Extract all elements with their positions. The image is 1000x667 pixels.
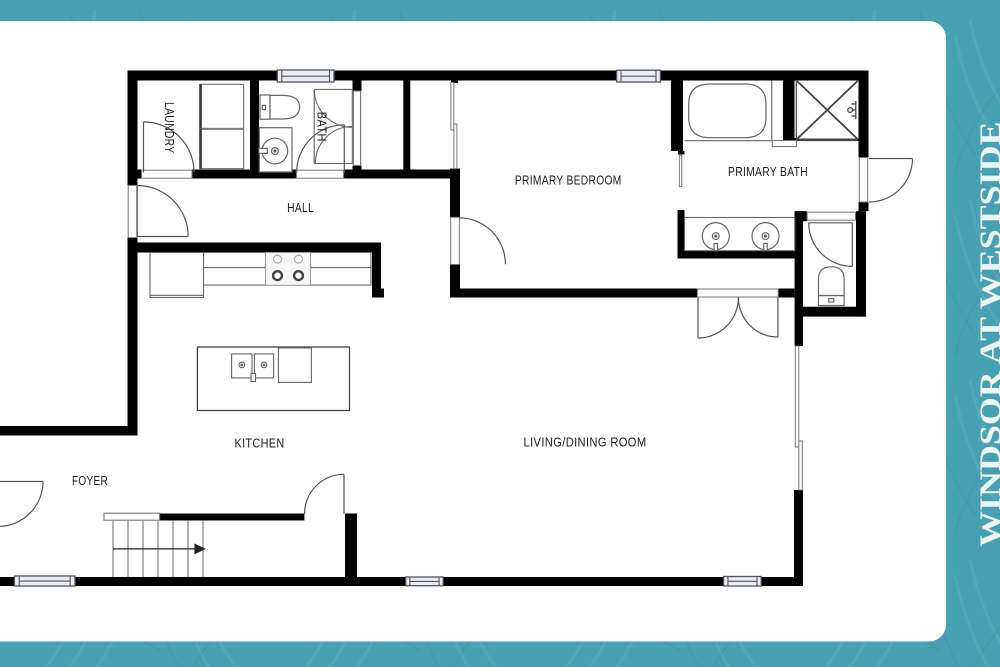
svg-text:LAUNDRY: LAUNDRY: [162, 102, 176, 154]
svg-text:PRIMARY BATH: PRIMARY BATH: [728, 165, 808, 179]
svg-text:BATH: BATH: [315, 112, 329, 142]
svg-text:WINDSOR AT WESTSIDE: WINDSOR AT WESTSIDE: [974, 121, 1000, 547]
svg-text:LIVING/DINING ROOM: LIVING/DINING ROOM: [524, 435, 647, 449]
svg-text:PRIMARY BEDROOM: PRIMARY BEDROOM: [515, 174, 622, 188]
svg-text:FOYER: FOYER: [72, 474, 108, 488]
svg-text:HALL: HALL: [287, 201, 314, 215]
svg-text:KITCHEN: KITCHEN: [235, 437, 285, 451]
